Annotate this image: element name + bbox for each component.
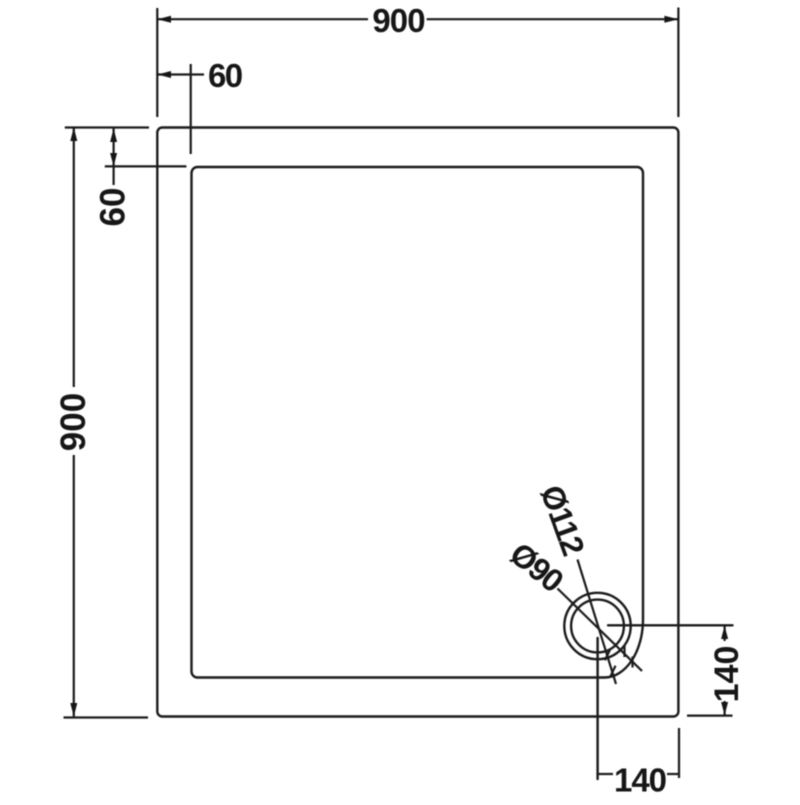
- svg-text:140: 140: [708, 646, 746, 703]
- svg-text:900: 900: [54, 393, 93, 451]
- svg-text:140: 140: [614, 762, 666, 799]
- svg-text:60: 60: [208, 57, 242, 94]
- svg-text:60: 60: [94, 188, 133, 227]
- svg-text:900: 900: [372, 2, 424, 39]
